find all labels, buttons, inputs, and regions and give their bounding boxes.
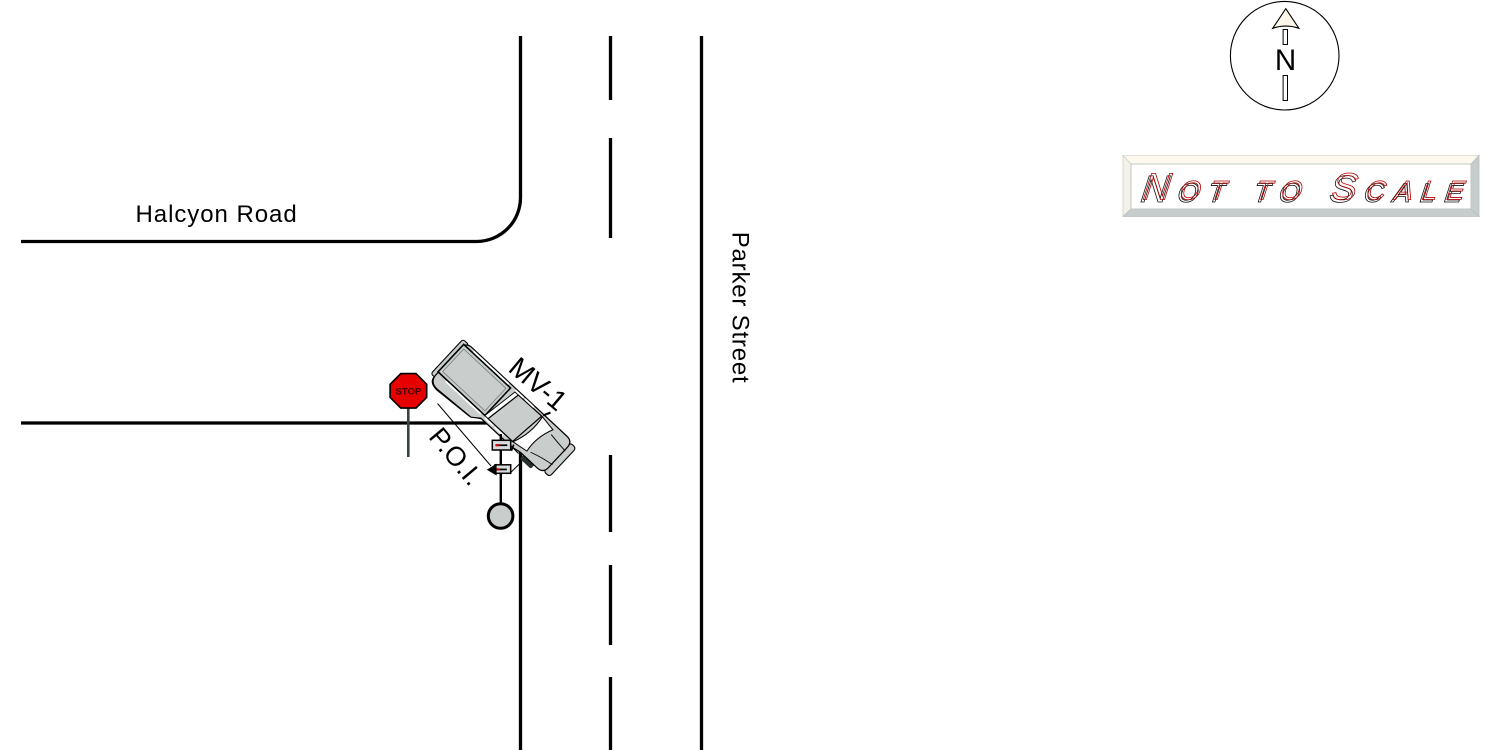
- svg-text:Halcyon Road: Halcyon Road: [136, 201, 298, 228]
- svg-text:N: N: [1275, 44, 1296, 77]
- svg-text:Parker Street: Parker Street: [727, 232, 754, 384]
- svg-text:STOP: STOP: [396, 387, 422, 398]
- svg-text:P.O.I.: P.O.I.: [423, 422, 488, 491]
- svg-text:Not to Scale: Not to Scale: [1141, 166, 1477, 209]
